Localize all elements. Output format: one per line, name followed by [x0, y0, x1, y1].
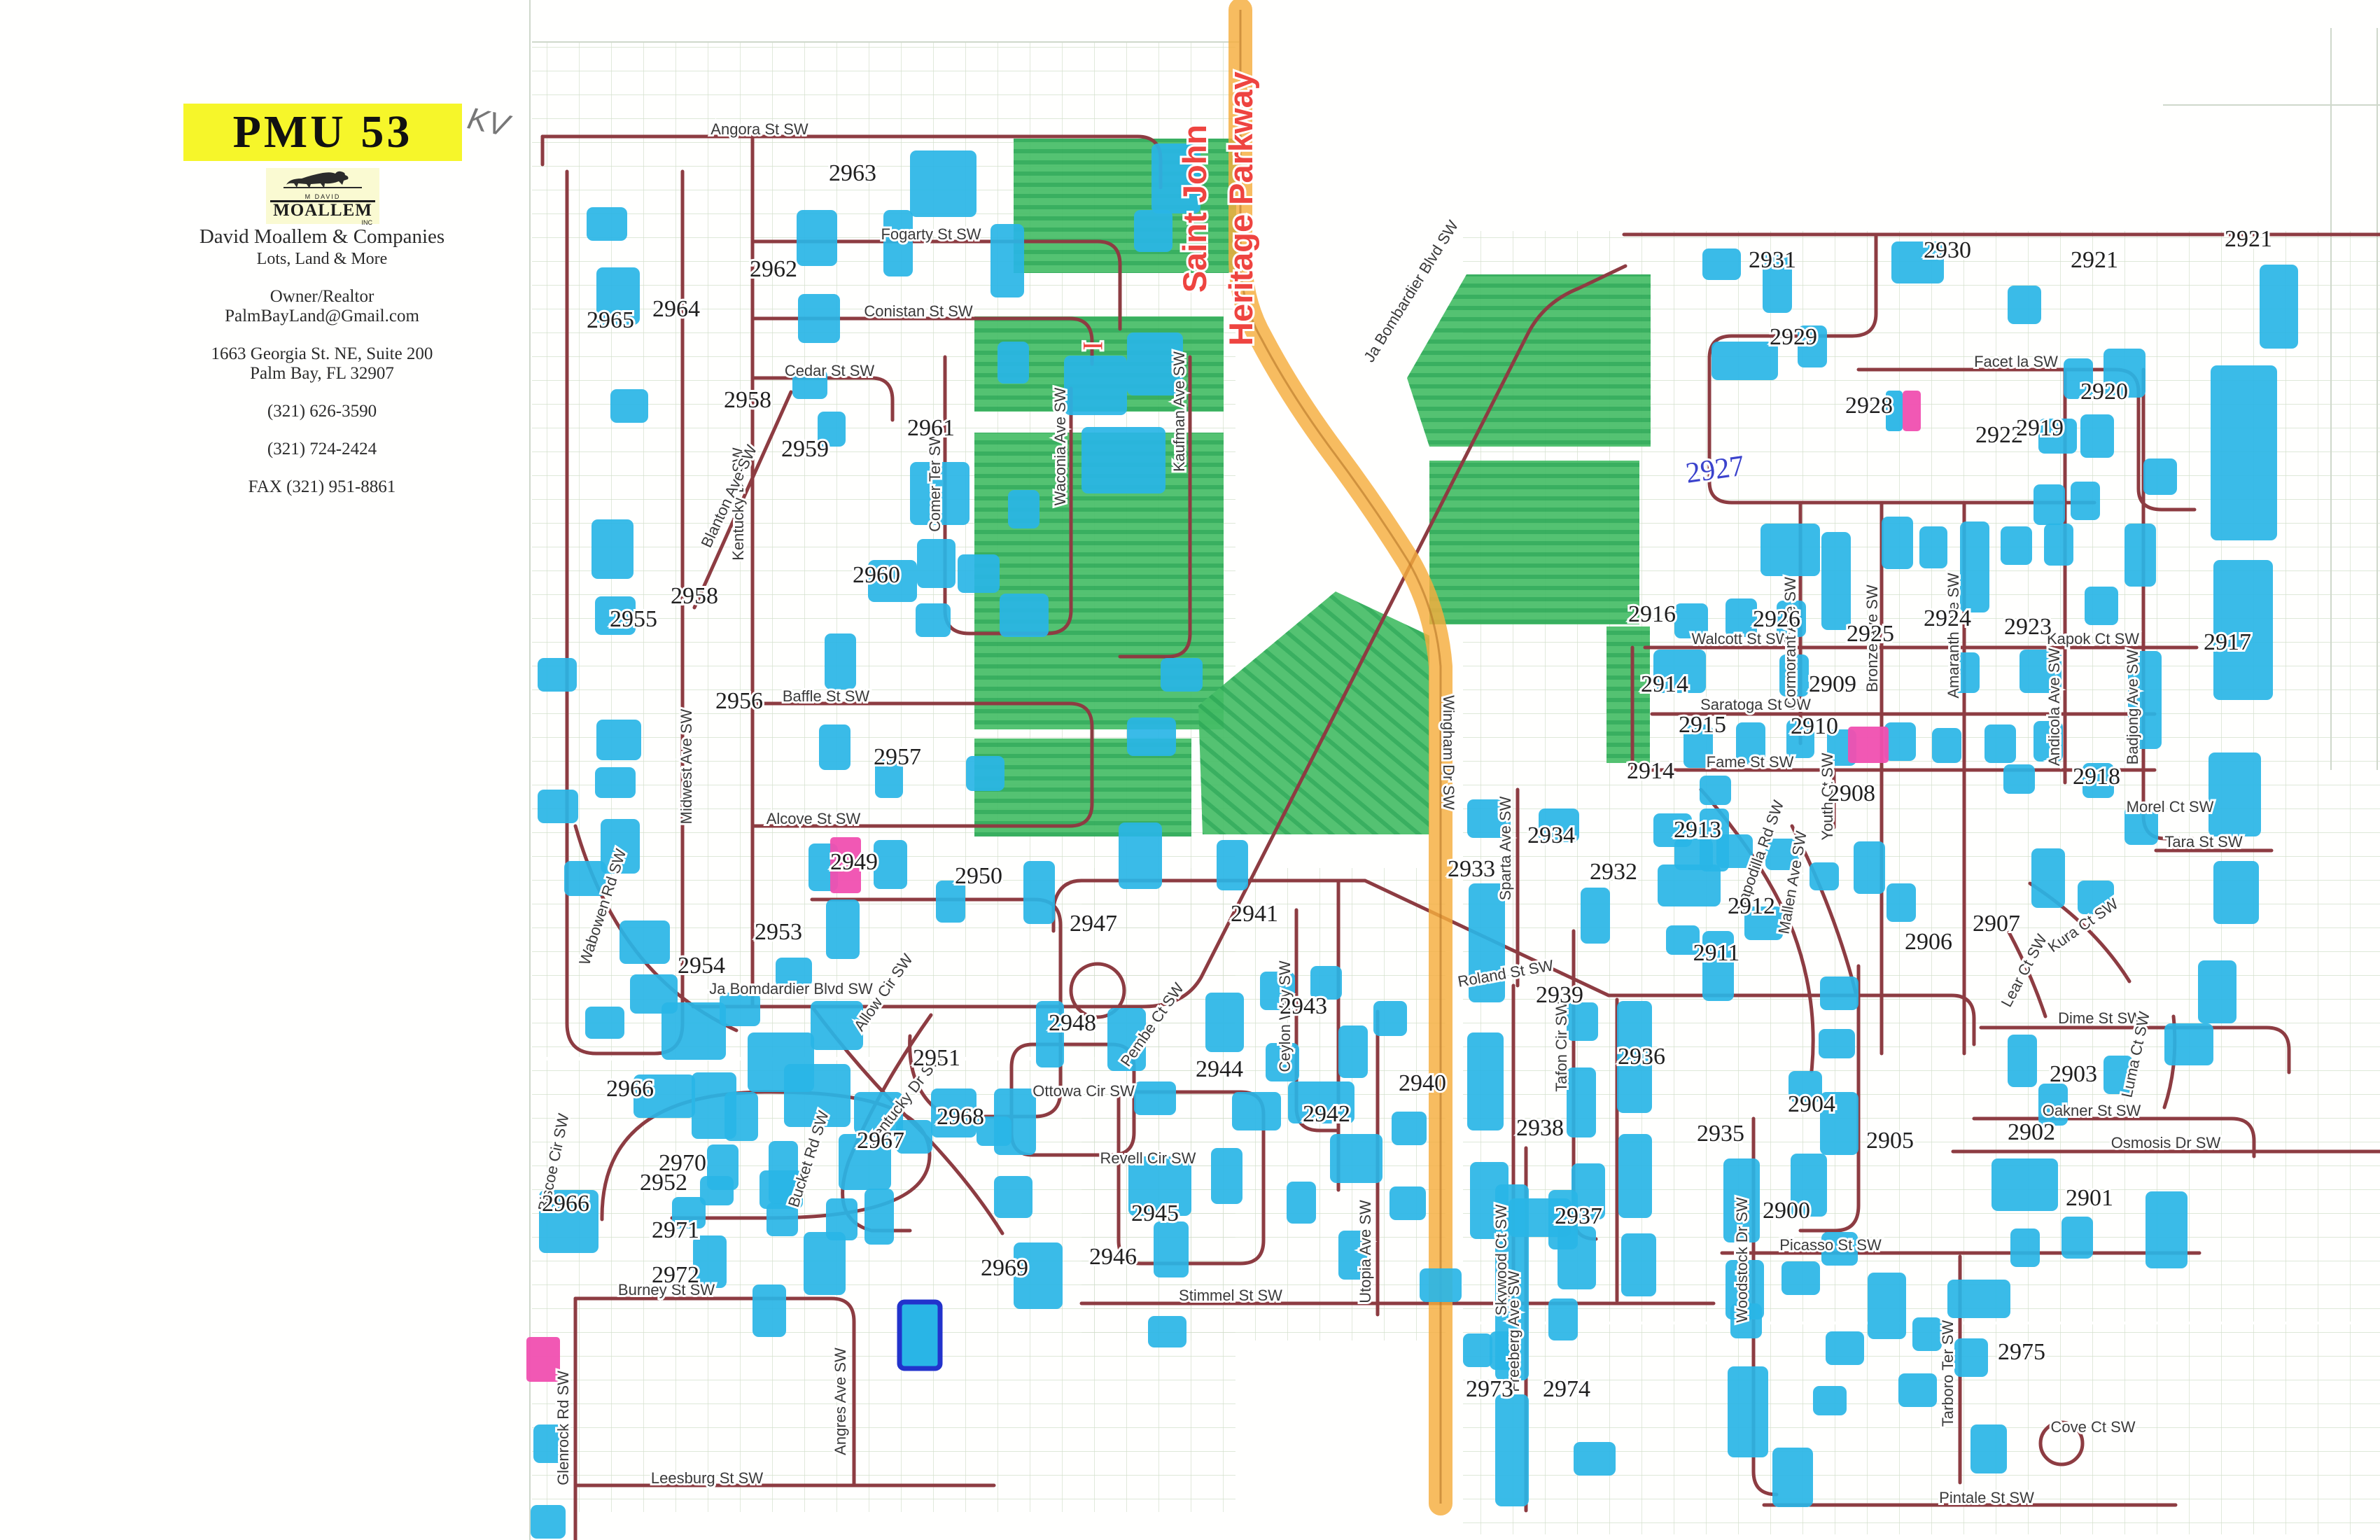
highlighted-lot-cyan [797, 210, 837, 266]
highlighted-lot-cyan [1008, 490, 1039, 528]
parcel-number: 2973 [1466, 1376, 1513, 1402]
street-label: Dime St SW [2058, 1009, 2142, 1027]
highlighted-lot-cyan [720, 993, 760, 1026]
highlighted-lot-cyan [1970, 1424, 2007, 1473]
street-label: Oakner St SW [2043, 1102, 2141, 1119]
street-label: Glenrock Rd SW [554, 1371, 572, 1485]
logo-top-text: M DAVID [266, 194, 379, 200]
highlighted-lot-cyan [1882, 517, 1913, 569]
highlighted-lot-cyan [1373, 1001, 1407, 1036]
green-area-hatch [1407, 274, 1651, 447]
parcel-number: 2926 [1753, 606, 1800, 632]
phone-1: (321) 626-3590 [126, 402, 518, 421]
highlighted-lot-cyan [585, 1007, 624, 1039]
highlighted-lot-cyan [1960, 521, 1989, 612]
highlighted-lot-cyan [1567, 1067, 1596, 1137]
highlighted-lot-cyan [2211, 365, 2277, 540]
highlighted-lot-cyan [1338, 1025, 1368, 1078]
street-label: Angora St SW [710, 120, 808, 138]
parcel-number: 2967 [857, 1128, 904, 1154]
highlighted-lot-cyan [2213, 861, 2259, 924]
street-label: Midwest Ave SW [678, 708, 695, 824]
parcel-number: 2969 [981, 1255, 1028, 1281]
highlighted-lot-cyan [1819, 1029, 1855, 1058]
parcel-number: 2924 [1924, 605, 1971, 631]
highlighted-lot-cyan [2143, 458, 2177, 495]
parcel-number: 2974 [1543, 1376, 1590, 1402]
highlighted-lot-cyan [917, 539, 955, 588]
street-label: Kapok Ct SW [2047, 630, 2139, 647]
parcel-number: 2971 [652, 1217, 699, 1243]
highlighted-lot-cyan [1205, 993, 1244, 1052]
street-label: Ja Bomdardier Blvd SW [709, 980, 873, 997]
highlighted-lot-cyan [2260, 265, 2298, 349]
highlighted-lot-cyan [2044, 524, 2073, 566]
moallem-logo: M DAVID MOALLEM INC [266, 168, 379, 224]
highlighted-lot-cyan [1711, 342, 1778, 380]
highlighted-lot-cyan [596, 720, 641, 760]
street-label: Comer Ter SW [926, 431, 944, 532]
highlighted-lot-cyan [1330, 1134, 1382, 1183]
highlighted-lot-cyan [1702, 248, 1741, 280]
parcel-number: 2945 [1131, 1200, 1179, 1226]
scanned-map-page: Angora St SWFogarty St SWConistan St SWC… [0, 0, 2380, 1540]
highlighted-lot-cyan [595, 767, 636, 798]
highlighted-lot-cyan [1232, 1092, 1281, 1130]
parcel-number: 2938 [1516, 1115, 1564, 1141]
highlighted-lot-cyan [2080, 414, 2114, 458]
highlighted-lot-cyan [1023, 861, 1055, 924]
street-label: Freeberg Ave SW [1505, 1270, 1522, 1392]
highlighted-lot-cyan [966, 756, 1004, 791]
street-label: Revell Cir SW [1100, 1149, 1196, 1167]
address-line-2: Palm Bay, FL 32907 [126, 364, 518, 384]
highlighted-lot-cyan [1820, 976, 1858, 1010]
highlighted-lot-cyan [2208, 752, 2261, 836]
highlighted-lot-cyan [1826, 1331, 1864, 1365]
highlighted-lot-cyan [958, 554, 1000, 593]
parcel-number: 2930 [1924, 237, 1971, 263]
highlighted-lot-cyan [766, 1203, 798, 1236]
highlighted-lot-cyan [798, 294, 840, 343]
handwritten-annotation: I [1077, 341, 1109, 350]
parcel-number: 2961 [907, 415, 955, 441]
parcel-number: 2953 [755, 919, 802, 945]
highlighted-lot-cyan [874, 840, 907, 889]
street-label: Ottowa Cir SW [1032, 1082, 1135, 1100]
highlighted-lot-cyan [707, 1144, 738, 1190]
highlighted-lot-pink [1848, 727, 1889, 763]
highlighted-lot-cyan [1574, 1442, 1616, 1476]
owner-line: Owner/Realtor [126, 287, 518, 307]
parcel-number: 2956 [715, 688, 763, 714]
parcel-number: 2946 [1089, 1244, 1137, 1270]
highlighted-lot-cyan [819, 724, 850, 770]
parcel-number: 2968 [937, 1104, 984, 1130]
parcel-number: 2954 [678, 953, 725, 979]
parcel-number: 2951 [913, 1045, 960, 1071]
parcel-number: 2921 [2071, 247, 2118, 273]
parkway-label: Heritage Parkway [1222, 71, 1259, 346]
street-label: Wingham Dr SW [1440, 695, 1457, 810]
street-label: Walcott St SW [1692, 630, 1791, 647]
parcel-number: 2960 [853, 562, 900, 588]
parcel-number: 2965 [587, 307, 634, 333]
parcel-number: 2939 [1536, 982, 1583, 1008]
highlighted-lot-cyan [1389, 1186, 1426, 1220]
highlighted-lot-cyan [994, 1088, 1036, 1155]
highlighted-lot-cyan [1991, 1158, 2058, 1211]
street-label: Osmosis Dr SW [2111, 1134, 2221, 1151]
highlighted-lot-cyan [1854, 841, 1885, 894]
parcel-number: 2917 [2204, 629, 2251, 655]
parcel-number: 2943 [1280, 993, 1327, 1019]
parcel-number: 2940 [1399, 1070, 1446, 1096]
street-label: Amaranth Ave SW [1945, 573, 1962, 699]
parcel-number: 2935 [1697, 1121, 1744, 1147]
address-line-1: 1663 Georgia St. NE, Suite 200 [126, 344, 518, 364]
street-label: Sparta Ave SW [1497, 796, 1514, 900]
parcel-number: 2902 [2008, 1119, 2055, 1145]
parcel-number: 2964 [652, 296, 700, 322]
highlighted-lot-cyan [1392, 1112, 1427, 1145]
highlighted-lot-cyan [1621, 1233, 1656, 1296]
street-label: Facet la SW [1974, 353, 2058, 370]
parcel-number: 2932 [1590, 859, 1637, 885]
highlighted-lot-cyan [1127, 717, 1176, 756]
highlighted-lot-cyan [610, 389, 648, 423]
parcel-number: 2958 [724, 387, 771, 413]
company-name: David Moallem & Companies [126, 225, 518, 248]
parkway-label: Saint John [1176, 125, 1213, 293]
street-label: Waconia Ave SW [1051, 387, 1069, 505]
street-label: Fame St SW [1707, 753, 1794, 771]
phone-2: (321) 724-2424 [126, 440, 518, 459]
highlighted-lot-cyan [2198, 960, 2236, 1023]
parcel-number: 2906 [1905, 929, 1952, 955]
highlighted-lot-cyan [2001, 526, 2032, 565]
street-label: Morel Ct SW [2127, 798, 2214, 815]
highlighted-lot-cyan [1081, 427, 1165, 493]
highlighted-lot-cyan [2008, 286, 2041, 324]
highlighted-lot-cyan [1467, 1032, 1504, 1130]
highlighted-lot-cyan [1813, 1386, 1847, 1415]
parcel-number: 2925 [1847, 621, 1894, 647]
parcel-number: 2914 [1641, 671, 1688, 697]
street-label: Angres Ave SW [832, 1347, 849, 1455]
highlighted-lot-cyan [591, 519, 633, 579]
highlighted-lot-cyan [1912, 1317, 1942, 1351]
street-label: Kaufman Ave SW [1170, 351, 1188, 472]
parcel-number: 2908 [1828, 780, 1875, 806]
parcel-number: 2912 [1728, 893, 1775, 919]
street-label: Woodstock Dr SW [1733, 1197, 1751, 1323]
parcel-number: 2921 [2225, 226, 2272, 252]
street-label: Utopia Ave SW [1357, 1200, 1374, 1303]
highlighted-lot-cyan [2145, 1191, 2187, 1268]
highlighted-lot-cyan [538, 790, 578, 823]
highlighted-lot-blue-outline [899, 1302, 940, 1368]
highlighted-lot-cyan [804, 1232, 846, 1295]
highlighted-lot-cyan [990, 224, 1024, 297]
parcel-number: 2916 [1628, 601, 1676, 627]
highlighted-lot-cyan [1134, 1081, 1176, 1115]
highlighted-lot-cyan [2124, 524, 2156, 587]
highlighted-lot-cyan [752, 1284, 786, 1337]
parcel-number: 2937 [1555, 1203, 1602, 1229]
highlighted-lot-cyan [1954, 1338, 1988, 1377]
parcel-number: 2950 [955, 863, 1002, 889]
parcel-number: 2970 [659, 1150, 706, 1176]
highlighted-lot-cyan [2033, 484, 2065, 525]
highlighted-lot-cyan [1148, 1316, 1186, 1347]
parcel-number: 2931 [1749, 247, 1796, 273]
street-label: Tara St SW [2164, 833, 2242, 850]
highlighted-lot-cyan [2008, 1035, 2037, 1087]
parcel-number: 2966 [606, 1076, 654, 1102]
highlighted-lot-cyan [1287, 1182, 1316, 1224]
highlighted-lot-cyan [1618, 1134, 1652, 1218]
highlighted-lot-cyan [1984, 724, 2016, 763]
logo-name: MOALLEM [270, 200, 375, 219]
highlighted-lot-cyan [1161, 658, 1203, 692]
highlighted-lot-cyan [587, 207, 627, 241]
parcel-number: 2941 [1231, 901, 1278, 927]
street-label: Badjong Ave SW [2124, 649, 2141, 764]
parcel-number: 2928 [1845, 393, 1893, 419]
parcel-number: 2934 [1527, 822, 1575, 848]
email-line: PalmBayLand@Gmail.com [126, 307, 518, 326]
parcel-number: 2903 [2050, 1061, 2097, 1087]
highlighted-lot-cyan [2031, 848, 2065, 908]
parcel-number: 2972 [652, 1262, 699, 1288]
street-label: Picasso St SW [1779, 1236, 1882, 1254]
highlighted-lot-cyan [1821, 532, 1851, 630]
pmu-title-box: PMU 53 [183, 104, 462, 161]
parcel-number: 2933 [1448, 856, 1495, 882]
parcel-number: 2918 [2073, 764, 2120, 790]
highlighted-lot-cyan [1781, 1261, 1820, 1295]
parcel-number: 2959 [781, 436, 829, 462]
highlighted-lot-cyan [994, 1176, 1032, 1218]
highlighted-lot-cyan [1119, 822, 1162, 889]
street-label: Conistan St SW [864, 302, 973, 320]
highlighted-lot-cyan [1548, 1298, 1578, 1340]
highlighted-lot-cyan [661, 1002, 726, 1060]
parcel-number: 2962 [750, 256, 797, 282]
highlighted-lot-cyan [619, 920, 670, 964]
parcel-number: 2944 [1196, 1056, 1243, 1082]
highlighted-lot-cyan [1064, 356, 1127, 415]
highlighted-lot-cyan [1809, 862, 1839, 890]
parcel-number: 2923 [2004, 614, 2052, 640]
highlighted-lot-cyan [1919, 526, 1947, 568]
street-label: Tafon Cir SW [1553, 1001, 1570, 1092]
contact-block: David Moallem & Companies Lots, Land & M… [126, 225, 518, 497]
highlighted-lot-cyan [1658, 864, 1721, 906]
parcel-number: 2929 [1770, 324, 1817, 350]
parcel-number: 2919 [2016, 415, 2064, 441]
parcel-number: 2913 [1674, 817, 1721, 843]
parcel-number: 2958 [671, 583, 718, 609]
highlighted-lot-cyan [825, 633, 856, 689]
street-label: Cormorant Ave SW [1781, 577, 1799, 708]
highlighted-lot-cyan [2071, 482, 2100, 520]
highlighted-lot-cyan [1947, 1280, 2010, 1318]
highlighted-lot-cyan [1728, 1366, 1768, 1457]
highlighted-lot-cyan [1134, 210, 1172, 252]
highlighted-lot-cyan [1000, 594, 1049, 637]
highlighted-lot-cyan [1463, 1333, 1492, 1367]
highlighted-lot-cyan [1886, 883, 1916, 922]
parcel-number: 2914 [1627, 758, 1674, 784]
street-label: Stimmel St SW [1179, 1287, 1282, 1304]
parcel-number: 2905 [1866, 1128, 1914, 1154]
highlighted-lot-cyan [1581, 888, 1610, 944]
highlighted-lot-cyan [883, 210, 913, 276]
highlighted-lot-pink [1903, 391, 1921, 431]
parcel-number: 2904 [1788, 1091, 1835, 1117]
highlighted-lot-cyan [1772, 1448, 1813, 1507]
highlighted-lot-cyan [1884, 722, 1916, 761]
parcel-number: 2955 [610, 606, 657, 632]
highlighted-lot-cyan [1420, 1268, 1462, 1302]
street-label: Tarboro Ter SW [1939, 1320, 1956, 1427]
street-label: Cove Ct SW [2050, 1418, 2135, 1436]
tagline: Lots, Land & More [126, 250, 518, 269]
highlighted-lot-cyan [826, 899, 860, 959]
parcel-number: 2911 [1693, 940, 1740, 966]
highlighted-lot-cyan [2010, 1228, 2040, 1267]
highlighted-lot-cyan [1674, 839, 1713, 870]
highlighted-lot-cyan [1217, 840, 1248, 890]
highlighted-lot-cyan [2061, 1217, 2093, 1259]
parcel-number: 2963 [829, 160, 876, 186]
parcel-number: 2966 [542, 1191, 589, 1217]
highlighted-lot-cyan [864, 1189, 894, 1245]
lion-icon [281, 169, 365, 190]
parcel-number: 2942 [1303, 1101, 1350, 1127]
highlighted-lot-cyan [910, 150, 976, 217]
highlighted-lot-cyan [1495, 1394, 1529, 1506]
fax-line: FAX (321) 951-8861 [126, 477, 518, 497]
parcel-number: 2909 [1809, 671, 1856, 697]
parcel-number: 2920 [2080, 379, 2128, 405]
parcel-number: 2900 [1763, 1198, 1810, 1224]
highlighted-lot-cyan [724, 1092, 758, 1141]
street-label: Cedar St SW [785, 362, 875, 379]
highlighted-lot-cyan [538, 658, 577, 692]
highlighted-lot-cyan [531, 1505, 566, 1539]
parcel-number: 2907 [1973, 911, 2020, 937]
parcel-number: 2975 [1998, 1339, 2045, 1365]
parcel-number: 2948 [1049, 1010, 1096, 1036]
highlighted-lot-cyan [916, 603, 951, 637]
green-area-hatch [1429, 461, 1639, 624]
pmu-title: PMU 53 [233, 106, 413, 159]
highlighted-lot-cyan [1700, 776, 1731, 805]
street-label: Leesburg St SW [651, 1469, 763, 1487]
highlighted-lot-cyan [2164, 1023, 2213, 1065]
street-label: Baffle St SW [783, 687, 870, 705]
lot-grid-zone [1463, 1324, 2380, 1534]
parcel-number: 2901 [2066, 1185, 2113, 1211]
street-label: Pintale St SW [1939, 1489, 2034, 1506]
parcel-number: 2910 [1791, 713, 1838, 739]
highlighted-lot-cyan [1760, 524, 1820, 576]
highlighted-lot-cyan [1868, 1273, 1906, 1339]
street-label: Andicola Ave SW [2045, 648, 2063, 766]
parcel-number: 2947 [1070, 911, 1117, 937]
highlighted-lot-cyan [1567, 1002, 1598, 1041]
street-label: Fogarty St SW [881, 225, 981, 243]
highlighted-lot-cyan [2085, 587, 2118, 625]
parcel-number: 2915 [1679, 712, 1726, 738]
highlighted-lot-cyan [1898, 1373, 1937, 1407]
parcel-number: 2949 [830, 849, 878, 875]
highlighted-lot-cyan [1932, 728, 1961, 763]
parcel-number: 2957 [874, 744, 921, 770]
highlighted-lot-cyan [2003, 764, 2035, 794]
parcel-number: 2936 [1618, 1044, 1665, 1070]
highlighted-lot-cyan [1211, 1148, 1242, 1204]
street-label: Alcove St SW [766, 810, 861, 827]
highlighted-lot-cyan [997, 342, 1029, 384]
highlighted-lot-cyan [1154, 1221, 1189, 1277]
